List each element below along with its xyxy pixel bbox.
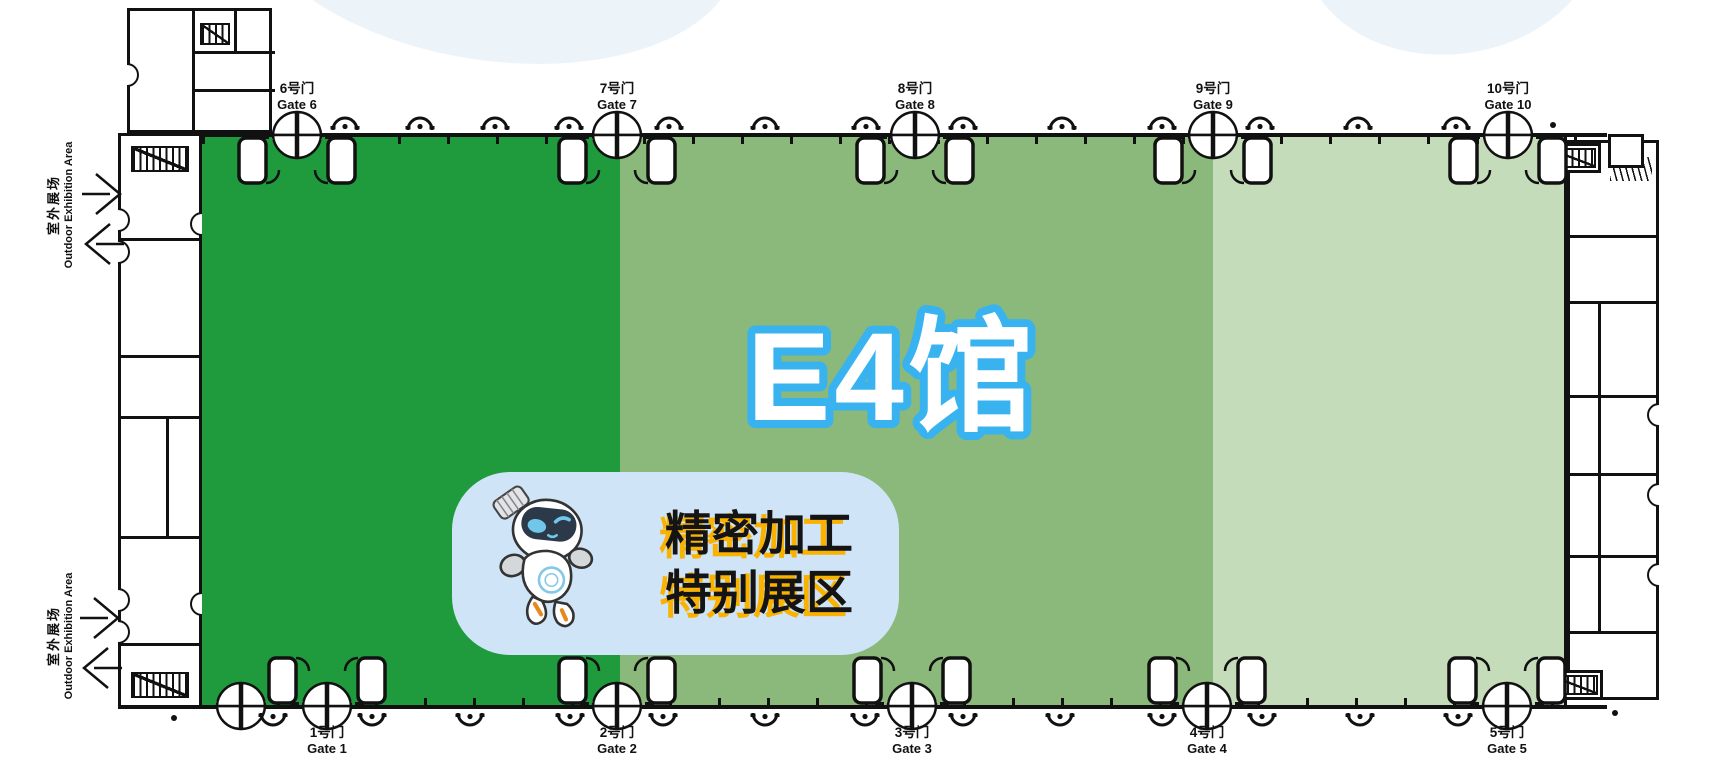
- door-swing-icon: [555, 711, 585, 729]
- door-swing-icon: [750, 114, 780, 132]
- door-swing-icon: [750, 711, 780, 729]
- special-zone-callout: 精密加工 特别展区: [452, 472, 899, 655]
- stairs-icon: [131, 146, 189, 172]
- outdoor-area-label-south: 室外展场 Outdoor Exhibition Area: [46, 536, 80, 736]
- outbuilding: [1608, 134, 1644, 168]
- door-swing-icon: [851, 114, 881, 132]
- door-swing-icon: [1245, 114, 1275, 132]
- gate-label: 3号门Gate 3: [892, 725, 932, 757]
- door-swing-icon: [455, 711, 485, 729]
- door-swing-icon: [1047, 114, 1077, 132]
- door-swing-icon: [654, 114, 684, 132]
- decor-blob-right: [1287, 0, 1617, 74]
- gate-label: 7号门Gate 7: [597, 81, 637, 113]
- zone-light-green: [1213, 133, 1564, 708]
- annex-east: [1567, 140, 1659, 700]
- door-swing-icon: [480, 114, 510, 132]
- in-out-arrows-icon: [80, 168, 126, 268]
- door-swing-icon: [1045, 711, 1075, 729]
- door-swing-icon: [405, 114, 435, 132]
- door-swing-icon: [1147, 114, 1177, 132]
- stairs-icon: [200, 23, 230, 45]
- door-swing-icon: [648, 711, 678, 729]
- outdoor-label-en: Outdoor Exhibition Area: [62, 105, 76, 305]
- door-swing-icon: [330, 114, 360, 132]
- door-swing-icon: [948, 114, 978, 132]
- floor-plan: 室外展场 Outdoor Exhibition Area 室外展场 Outdoo…: [0, 0, 1709, 783]
- gate-label: 6号门Gate 6: [277, 81, 317, 113]
- callout-line-2: 特别展区: [630, 563, 888, 622]
- outdoor-area-label-north: 室外展场 Outdoor Exhibition Area: [46, 105, 80, 305]
- gate-label: 4号门Gate 4: [1187, 725, 1227, 757]
- door-swing-icon: [357, 711, 387, 729]
- door-swing-icon: [1441, 114, 1471, 132]
- outdoor-label-en: Outdoor Exhibition Area: [62, 536, 76, 736]
- door-swing-icon: [1247, 711, 1277, 729]
- gate-label: 9号门Gate 9: [1193, 81, 1233, 113]
- door-swing-icon: [1443, 711, 1473, 729]
- gate-label: 5号门Gate 5: [1487, 725, 1527, 757]
- outdoor-label-cn: 室外展场: [46, 536, 62, 736]
- gate-label: 8号门Gate 8: [895, 81, 935, 113]
- in-out-arrows-icon: [78, 592, 124, 692]
- robot-mascot-icon: [482, 476, 598, 632]
- outdoor-label-cn: 室外展场: [46, 105, 62, 305]
- callout-line-1: 精密加工: [630, 504, 888, 563]
- gate-label: 10号门Gate 10: [1485, 81, 1532, 113]
- door-swing-icon: [1147, 711, 1177, 729]
- gate-label: 2号门Gate 2: [597, 725, 637, 757]
- door-swing-icon: [554, 114, 584, 132]
- door-swing-icon: [1343, 114, 1373, 132]
- door-swing-icon: [850, 711, 880, 729]
- service-door: [166, 646, 316, 766]
- door-swing-icon: [1345, 711, 1375, 729]
- column-dot: [1612, 710, 1618, 716]
- annex-west: [118, 133, 202, 708]
- door-swing-icon: [948, 711, 978, 729]
- door-swing-icon: [258, 711, 288, 729]
- gate-label: 1号门Gate 1: [307, 725, 347, 757]
